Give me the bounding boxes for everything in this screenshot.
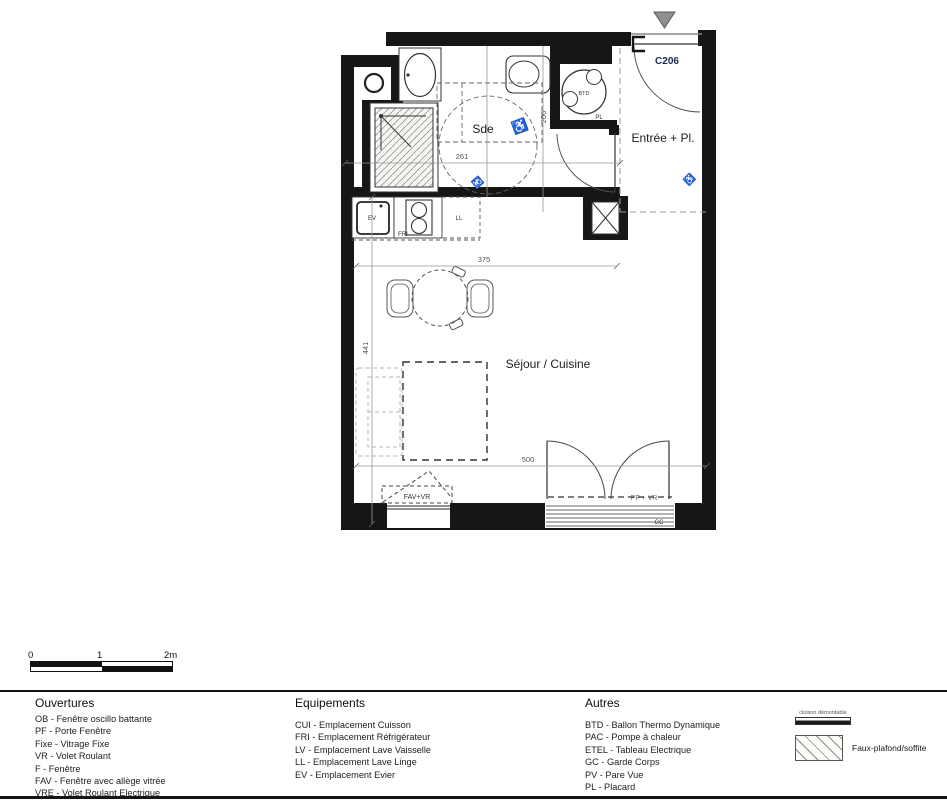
- kitchen-sink: EV: [352, 197, 394, 238]
- legend-symbols: cloison démontable Faux-plafond/soffite: [795, 710, 945, 761]
- legend-item: PF - Porte Fenêtre: [35, 725, 285, 737]
- entrance-marker-icon: [654, 12, 675, 28]
- legend-item: OB - Fenêtre oscillo battante: [35, 713, 285, 725]
- hatch-swatch-icon: [795, 735, 843, 761]
- legend-item: VRE - Volet Roulant Electrique: [35, 787, 285, 799]
- legend-item: FAV - Fenêtre avec allège vitrée: [35, 775, 285, 787]
- legend-openings-title: Ouvertures: [35, 696, 285, 710]
- legend-item: LV - Emplacement Lave Vaisselle: [295, 744, 565, 756]
- legend-item: PL - Placard: [585, 781, 785, 793]
- wheelchair-icon: ♿: [510, 116, 530, 136]
- legend: Ouvertures OB - Fenêtre oscillo battante…: [0, 690, 947, 799]
- dim-living-width-bottom: 500: [522, 455, 535, 464]
- window-fav: [387, 503, 450, 528]
- false-ceiling-symbol: Faux-plafond/soffite: [795, 735, 945, 761]
- scale-bar: 0 1 2m: [28, 650, 173, 674]
- balcony-doors: [547, 441, 672, 499]
- room-label-living: Séjour / Cuisine: [506, 357, 591, 371]
- legend-equipment: Equipements CUI - Emplacement Cuisson FR…: [295, 696, 565, 781]
- legend-item: EV - Emplacement Evier: [295, 769, 565, 781]
- legend-others: Autres BTD - Ballon Thermo Dynamique PAC…: [585, 696, 785, 793]
- dim-living-width: 375: [478, 255, 491, 264]
- water-heater: BTD: [562, 70, 606, 115]
- fridge-label: FRI: [398, 232, 408, 238]
- dim-living-height: 441: [361, 342, 370, 355]
- shower: [370, 103, 438, 192]
- entry-ceiling-dashed: [620, 48, 710, 212]
- legend-item: PAC - Pompe à chaleur: [585, 731, 785, 743]
- sofa: [356, 368, 402, 456]
- legend-openings: Ouvertures OB - Fenêtre oscillo battante…: [35, 696, 285, 800]
- legend-item: Fixe - Vitrage Fixe: [35, 738, 285, 750]
- fav-label: FAV+VR: [404, 494, 431, 501]
- french-door-opening: GC: [545, 503, 675, 528]
- water-heater-label: BTD: [579, 91, 590, 97]
- guardrail-label: GC: [655, 520, 665, 526]
- unit-label: C206: [655, 56, 679, 67]
- floor-plan: GC PF + VR FAV+VR: [0, 0, 947, 620]
- technical-shaft: [592, 202, 619, 234]
- legend-item: BTD - Ballon Thermo Dynamique: [585, 719, 785, 731]
- room-label-entry: Entrée + Pl.: [631, 131, 694, 145]
- partition-icon: [795, 717, 851, 725]
- legend-item: F - Fenêtre: [35, 763, 285, 775]
- scale-0: 0: [28, 650, 33, 661]
- legend-item: CUI - Emplacement Cuisson: [295, 719, 565, 731]
- legend-others-title: Autres: [585, 696, 785, 710]
- legend-item: VR - Volet Roulant: [35, 750, 285, 762]
- washer-label: LL: [456, 216, 463, 222]
- washbasin: [399, 48, 441, 101]
- partition-label: cloison démontable: [795, 710, 851, 716]
- entrance-door: [633, 37, 700, 112]
- room-label-bathroom: Sde: [472, 122, 494, 136]
- scale-1: 1: [97, 650, 102, 661]
- toilet: [506, 56, 550, 93]
- bed: [403, 362, 487, 460]
- ceiling-dashed-zones: [437, 83, 542, 194]
- cooktop: FRI: [394, 197, 442, 238]
- dim-sde-height: 206: [539, 111, 548, 124]
- legend-item: GC - Garde Corps: [585, 756, 785, 768]
- wheelchair-icon: ♿: [681, 171, 697, 187]
- placard-label: PL: [595, 115, 603, 121]
- duct-icon: [365, 74, 383, 92]
- dining-table: [387, 266, 493, 330]
- false-ceiling-label: Faux-plafond/soffite: [852, 743, 927, 753]
- legend-equipment-title: Equipements: [295, 696, 565, 710]
- scale-2m: 2m: [164, 650, 177, 661]
- washing-machine-slot: LL: [442, 197, 480, 238]
- legend-item: ETEL - Tableau Electrique: [585, 744, 785, 756]
- dim-sde-width: 261: [456, 152, 469, 161]
- balcony-door-label: PF + VR: [631, 495, 658, 502]
- bathroom-door: [557, 133, 615, 192]
- legend-item: LL - Emplacement Lave Linge: [295, 756, 565, 768]
- legend-item: PV - Pare Vue: [585, 769, 785, 781]
- scale-bar-segments: [30, 661, 173, 672]
- partition-symbol: cloison démontable: [795, 710, 851, 725]
- legend-item: FRI - Emplacement Réfrigérateur: [295, 731, 565, 743]
